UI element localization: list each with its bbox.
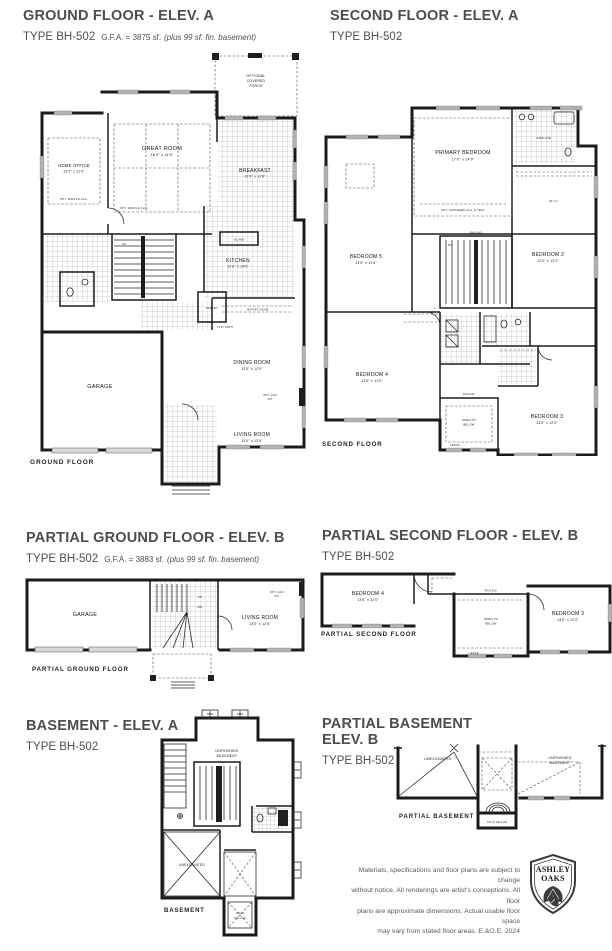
linen-label: L (434, 306, 436, 310)
logo-text-line1: ASHLEY (536, 865, 570, 874)
room-label-bedroom5: BEDROOM 5 (350, 254, 382, 260)
room-dims-bedroom5: 13'0" x 11'6" (355, 261, 377, 265)
cold-cellar-label-2: CELLAR (234, 916, 246, 920)
room-label-bedroom4: BEDROOM 4 (356, 372, 388, 378)
room-dims-bedroom3: 13'0" x 12'0" (536, 421, 558, 425)
header-partial-second-b: PARTIAL SECOND FLOOR - ELEV. B TYPE BH-5… (322, 528, 578, 565)
room-label-kitchen: KITCHEN (226, 258, 250, 264)
caption-ground-floor: GROUND FLOOR (30, 459, 94, 466)
ashley-oaks-logo: ASHLEY OAKS (527, 853, 579, 915)
room-dims-primary: 17'0" x 14'0" (452, 158, 475, 162)
note-gas-fireplace-1: OPT. GAS (270, 591, 284, 594)
panel-title: SECOND FLOOR - ELEV. A (330, 8, 519, 24)
unfinished-basement-2: BASEMENT (217, 754, 238, 758)
room-dims-bedroom2: 12'0" x 12'0" (537, 259, 559, 263)
room-label-primary: PRIMARY BEDROOM (435, 150, 490, 156)
room-label-bedroom3: BEDROOM 3 (531, 414, 563, 420)
caption-partial-ground: PARTIAL GROUND FLOOR (32, 666, 129, 673)
disclaimer-line-1: Materials, specifications and floor plan… (348, 866, 520, 886)
room-labels: BEDROOM 4 13'6" x 11'0" RAILING OPEN TO … (352, 589, 584, 656)
ledge-label: LEDGE (469, 652, 479, 655)
gfa-label: G.F.A. = 3875 sf. (101, 33, 161, 42)
disclaimer-line-4: may vary from stated floor areas. E.&O.E… (348, 927, 520, 937)
basement-plan-drawing: UNFINISHED BASEMENT UNEXCAVATED COLD CEL… (150, 700, 310, 948)
room-dims-bedroom4: 13'6" x 11'0" (357, 598, 379, 602)
header-second-floor-a: SECOND FLOOR - ELEV. A TYPE BH-502 (330, 8, 519, 45)
railing-label: RAILING (485, 589, 497, 593)
room-label-living: LIVING ROOM (242, 615, 278, 621)
room-dims-dining: 13'0" x 12'0" (241, 367, 263, 371)
type-label: TYPE BH-502 (26, 553, 98, 565)
type-label: TYPE BH-502 (330, 31, 402, 43)
disclaimer-line-3: plans are approximate dimensions. Actual… (348, 907, 520, 927)
stairs-up-label: UP (198, 595, 203, 599)
gfa-label: G.F.A. = 3883 sf. (104, 555, 164, 564)
caption-partial-second: PARTIAL SECOND FLOOR (321, 631, 417, 638)
note-buffet-niche: BUFFET NICHE (247, 309, 268, 312)
partial-basement-plan-drawing: UNEXCAVATED UNFINISHED BASEMENT COLD CEL… (368, 718, 612, 840)
header-partial-ground-b: PARTIAL GROUND FLOOR - ELEV. B TYPE BH-5… (26, 530, 285, 567)
disclaimer-line-2: without notice. All renderings are artis… (348, 886, 520, 906)
room-label-living: LIVING ROOM (234, 432, 270, 438)
porch (150, 654, 214, 688)
unfinished-basement-1: UNFINISHED (548, 756, 572, 760)
caption-basement: BASEMENT (164, 908, 205, 914)
room-dims-living: 13'0" x 12'6" (249, 622, 271, 626)
doors-dashes (414, 574, 544, 648)
room-label-ensuite: ENSUITE (537, 136, 552, 140)
room-dims-bedroom4: 13'6" x 11'0" (361, 379, 383, 383)
room-dims-breakfast: 12'0" x 11'0" (244, 175, 266, 179)
stairs: DN RAILING (446, 231, 506, 305)
type-label: TYPE BH-502 (23, 31, 95, 43)
caption-second-floor: SECOND FLOOR (322, 441, 383, 448)
bath-fixtures (252, 806, 290, 832)
open-to-below-2: BELOW (485, 622, 496, 626)
unfinished-basement-1: UNFINISHED (215, 749, 239, 753)
gfa-note: (plus 99 sf. fin. basement) (164, 33, 256, 42)
room-dims-living: 13'0" x 12'6" (241, 439, 263, 443)
porch-label-3: PORCH (249, 84, 263, 88)
railing-label-2: RAILING (463, 393, 475, 396)
cold-cellar-label-1: COLD (236, 911, 244, 915)
panel-title: PARTIAL GROUND FLOOR - ELEV. B (26, 530, 285, 546)
room-label-garage: GARAGE (87, 384, 112, 390)
unexcavated-label: UNEXCAVATED (179, 863, 205, 867)
room-label-bedroom3: BEDROOM 3 (552, 611, 584, 617)
stairs-dn-label: DN (448, 243, 453, 247)
header-ground-floor-a: GROUND FLOOR - ELEV. A TYPE BH-502G.F.A.… (23, 8, 256, 45)
unexcavated-label: UNEXCAVATED (424, 757, 452, 761)
type-label: TYPE BH-502 (322, 551, 394, 563)
optional-porch: OPTIONAL COVERED PORCH (212, 53, 299, 116)
room-dims-great-room: 18'0" x 14'0" (151, 153, 174, 157)
porch-label-2: COVERED (247, 79, 266, 83)
note-gas-fireplace-1: OPT. GAS (263, 394, 277, 397)
room-dims-bedroom3: 13'0" x 12'0" (557, 618, 579, 622)
stairs-up-label: UP (122, 242, 127, 246)
ledge-label: LEDGE (450, 444, 460, 447)
note-coffered: OPT. COFFERED CLG. & TRAY (441, 208, 485, 212)
panel-title: PARTIAL SECOND FLOOR - ELEV. B (322, 528, 578, 544)
cold-cellar-label: COLD CELLAR (487, 821, 507, 824)
island-label: ISLAND (234, 238, 245, 242)
room-label-bedroom2: BEDROOM 2 (532, 252, 564, 258)
unexcavated-lines (399, 744, 477, 796)
stairs-dn-label: DN (198, 605, 203, 609)
note-waffle-ceiling-great: OPT. WAFFLE CLG. (120, 206, 148, 210)
room-label-bedroom4: BEDROOM 4 (352, 591, 384, 597)
note-waffle-ceiling-office: OPT. WAFFLE CLG. (60, 197, 88, 201)
unfinished-basement-2: BASEMENT (550, 761, 571, 765)
porch-label-1: OPTIONAL (246, 74, 265, 78)
pantry-label: PANTRY (206, 306, 218, 310)
stairs: UP (114, 236, 174, 298)
room-labels: PRIMARY BEDROOM 17'0" x 14'0" OPT. COFFE… (350, 136, 564, 447)
gfa-note: (plus 99 sf. fin. basement) (167, 555, 259, 564)
page-title: GROUND FLOOR - ELEV. A (23, 8, 256, 24)
ground-floor-plan-drawing: OPTIONAL COVERED PORCH (12, 46, 310, 498)
floor-plan-sheet: GROUND FLOOR - ELEV. A TYPE BH-502G.F.A.… (0, 0, 612, 951)
room-label-great-room: GREAT ROOM (142, 146, 182, 152)
note-gas-fireplace-2: F/P (275, 595, 280, 598)
room-label-dining: DINING ROOM (233, 360, 270, 366)
disclaimer: Materials, specifications and floor plan… (348, 866, 520, 937)
open-to-below-2: BELOW (463, 423, 474, 427)
partial-ground-floor-plan-drawing: UP DN OPT. GAS F/P GARAGE LIVING ROOM 13… (15, 566, 315, 690)
logo-text-line2: OAKS (541, 874, 565, 883)
caption-partial-basement: PARTIAL BASEMENT (399, 814, 474, 820)
railing-label: RAILING (470, 231, 482, 235)
open-to-below-1: OPEN TO (462, 418, 477, 422)
second-floor-plan-drawing: DN RAILING PRIMARY BEDROOM 17'0" (316, 46, 612, 456)
note-flat-arch: FLAT ARCH (217, 326, 233, 329)
room-dims-home-office: 12'0" x 11'0" (63, 170, 85, 174)
room-label-home-office: HOME OFFICE (58, 163, 90, 168)
subtitle: TYPE BH-502G.F.A. = 3875 sf.(plus 99 sf.… (23, 27, 256, 45)
room-label-breakfast: BREAKFAST (239, 168, 271, 174)
room-label-wic: W.I.C. (549, 199, 559, 203)
type-label: TYPE BH-502 (26, 741, 98, 753)
room-dims-kitchen: 12'0" x 14'6" (227, 265, 249, 269)
room-label-garage: GARAGE (73, 612, 98, 618)
open-to-below-1: OPEN TO (484, 617, 499, 621)
note-gas-fireplace-2: F/P (268, 398, 273, 401)
partial-second-floor-plan-drawing: BEDROOM 4 13'6" x 11'0" RAILING OPEN TO … (318, 564, 612, 676)
